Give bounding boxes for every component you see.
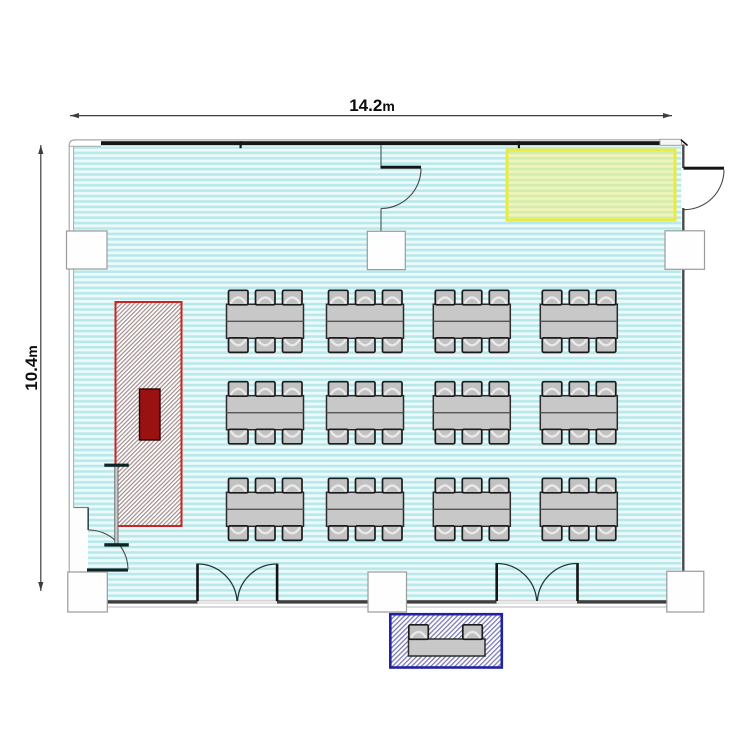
svg-text:10.4m: 10.4m	[22, 345, 41, 391]
svg-text:14.2m: 14.2m	[349, 96, 395, 115]
